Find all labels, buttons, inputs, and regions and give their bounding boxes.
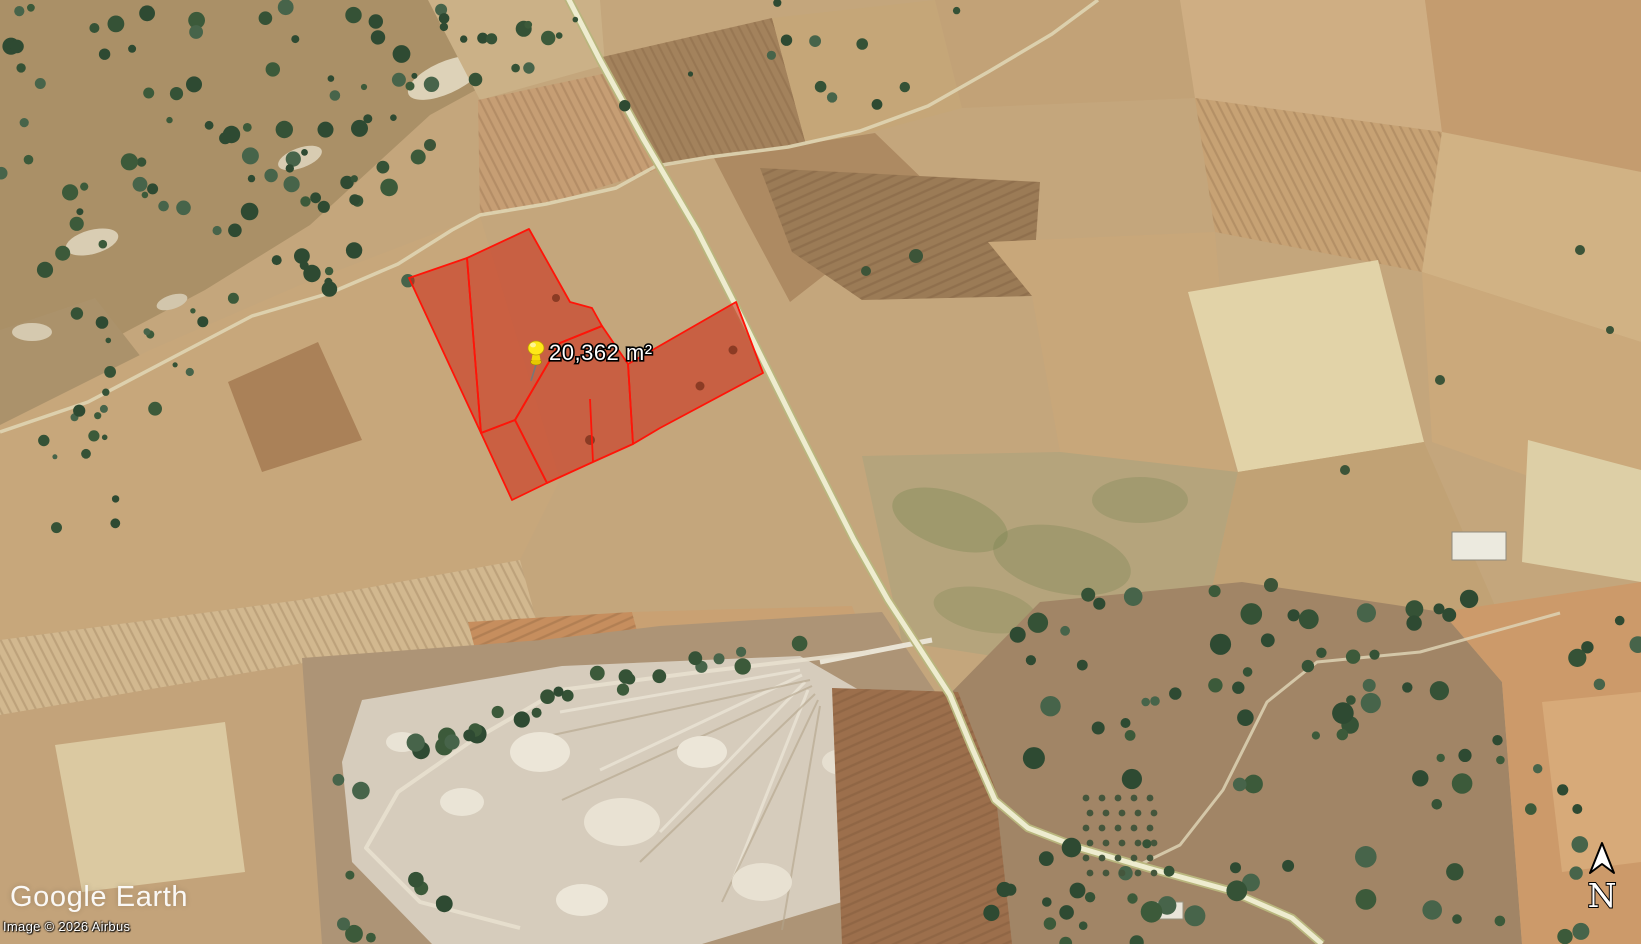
north-label: N xyxy=(1588,876,1617,915)
north-compass[interactable]: N xyxy=(1580,840,1626,920)
copyright-text: Image © 2026 Airbus xyxy=(3,919,130,934)
parcel-area-label: 20,362 m² xyxy=(549,340,653,365)
north-arrow-icon xyxy=(1590,843,1614,873)
google-earth-logo: Google Earth xyxy=(10,881,188,914)
google-earth-viewport[interactable]: 20,362 m² Google Earth Image © 2026 Airb… xyxy=(0,0,1641,944)
satellite-map[interactable]: 20,362 m² xyxy=(0,0,1641,944)
